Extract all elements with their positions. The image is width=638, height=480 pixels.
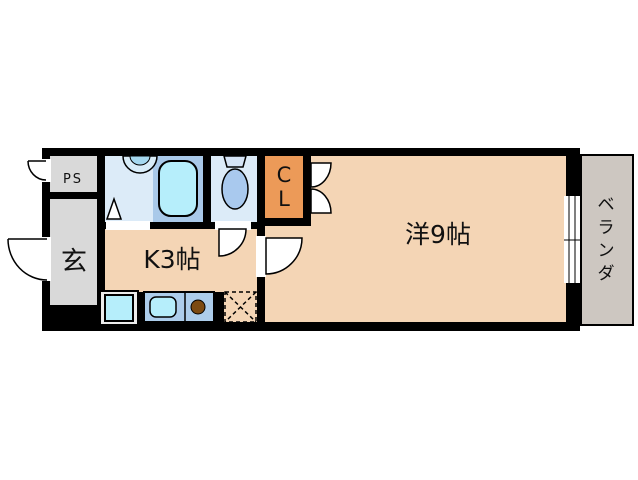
wall-counter-sep2	[214, 292, 224, 322]
floorplan-page: ベ ラ ン ダ PS 玄 K3帖 洋9帖 C L	[0, 0, 638, 480]
floorplan-svg: ベ ラ ン ダ PS 玄 K3帖 洋9帖 C L	[0, 0, 638, 480]
veranda: ベ ラ ン ダ	[581, 155, 633, 325]
kitchen-label: K3帖	[143, 245, 200, 274]
kitchen-sink-icon	[150, 297, 176, 317]
veranda-floor	[581, 155, 633, 325]
veranda-window	[564, 196, 580, 283]
wall-closet-right	[303, 148, 311, 226]
veranda-label-char1: ベ	[598, 195, 615, 215]
entrance-door-gap	[41, 237, 51, 281]
entrance-label: 玄	[61, 247, 87, 277]
bathtub-icon	[159, 161, 197, 216]
toilet-bowl-icon	[222, 169, 248, 209]
toilet-fixtures	[222, 156, 248, 209]
veranda-label-char3: ン	[598, 241, 615, 261]
closet-label-c: C	[277, 163, 292, 187]
mainroom-door-gap	[256, 236, 266, 277]
stove-burner-icon	[191, 300, 205, 314]
washer-pan-icon	[105, 295, 133, 321]
western-room-label: 洋9帖	[405, 220, 471, 249]
wall-right-upper	[566, 148, 580, 196]
wall-toilet-closet	[257, 148, 265, 229]
closet-label-l: L	[278, 187, 290, 211]
bath-door-gap	[106, 221, 150, 230]
veranda-label-char2: ラ	[598, 218, 615, 238]
ps-label: PS	[63, 172, 83, 187]
wall-entrance-block	[42, 305, 100, 331]
wall-right-lower	[566, 283, 580, 331]
toilet-tank-icon	[224, 156, 246, 167]
wall-closet-bottom	[257, 218, 311, 226]
veranda-label-char4: ダ	[598, 264, 615, 284]
ps-door-gap	[41, 159, 51, 182]
wall-ps-bottom	[42, 192, 105, 199]
wall-bath-toilet	[203, 148, 211, 229]
